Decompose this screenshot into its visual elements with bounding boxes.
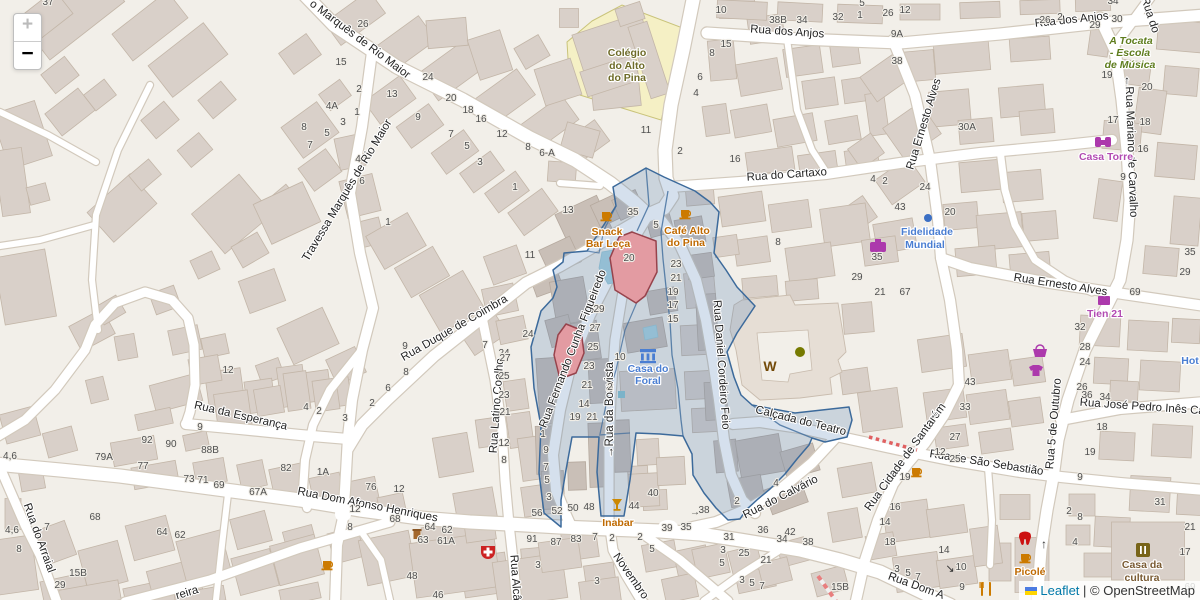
svg-text:38: 38 xyxy=(891,56,903,67)
svg-text:50: 50 xyxy=(567,503,579,514)
svg-text:37: 37 xyxy=(42,0,54,8)
svg-text:9: 9 xyxy=(1077,472,1083,483)
svg-text:29: 29 xyxy=(593,304,605,315)
svg-text:1: 1 xyxy=(385,217,391,228)
svg-text:5: 5 xyxy=(749,578,755,589)
svg-text:2: 2 xyxy=(316,406,322,417)
svg-text:68: 68 xyxy=(389,514,401,525)
svg-text:Foral: Foral xyxy=(635,375,661,387)
svg-text:1: 1 xyxy=(540,429,546,440)
svg-text:Café Alto: Café Alto xyxy=(664,225,710,237)
svg-text:1: 1 xyxy=(512,182,518,193)
svg-text:5: 5 xyxy=(324,128,330,139)
svg-text:83: 83 xyxy=(570,534,582,545)
svg-text:26: 26 xyxy=(1039,15,1051,26)
svg-text:2: 2 xyxy=(609,533,615,544)
svg-text:12: 12 xyxy=(934,447,946,458)
svg-text:35: 35 xyxy=(1184,247,1196,258)
svg-text:15: 15 xyxy=(720,39,732,50)
svg-text:21: 21 xyxy=(874,287,886,298)
svg-text:43: 43 xyxy=(964,377,976,388)
svg-text:14: 14 xyxy=(938,545,950,556)
svg-text:21: 21 xyxy=(760,555,772,566)
svg-text:Hot: Hot xyxy=(1181,355,1199,367)
svg-text:35: 35 xyxy=(627,207,639,218)
svg-text:61A: 61A xyxy=(437,536,455,547)
svg-text:10: 10 xyxy=(614,352,626,363)
svg-text:26: 26 xyxy=(1076,382,1088,393)
svg-text:21: 21 xyxy=(581,380,593,391)
svg-text:20: 20 xyxy=(623,253,635,264)
svg-text:24: 24 xyxy=(522,329,534,340)
svg-text:38: 38 xyxy=(698,505,710,516)
svg-text:29: 29 xyxy=(1089,20,1101,31)
svg-text:3: 3 xyxy=(739,575,745,586)
svg-text:76: 76 xyxy=(365,482,377,493)
svg-text:3: 3 xyxy=(594,576,600,587)
svg-text:17: 17 xyxy=(1107,115,1119,126)
svg-text:27: 27 xyxy=(949,432,961,443)
svg-text:1: 1 xyxy=(857,10,863,21)
svg-text:↘: ↘ xyxy=(945,563,954,575)
svg-text:Casa Torre: Casa Torre xyxy=(1079,151,1133,163)
svg-text:7: 7 xyxy=(915,572,921,583)
svg-text:7: 7 xyxy=(482,340,488,351)
svg-text:- Escola: - Escola xyxy=(1110,47,1150,59)
svg-text:8: 8 xyxy=(301,122,307,133)
svg-text:7: 7 xyxy=(44,522,50,533)
svg-text:68: 68 xyxy=(89,512,101,523)
svg-text:2: 2 xyxy=(677,146,683,157)
svg-text:8: 8 xyxy=(709,48,715,59)
svg-text:13: 13 xyxy=(562,205,574,216)
svg-text:36: 36 xyxy=(757,525,769,536)
svg-text:9: 9 xyxy=(197,422,203,433)
svg-text:4: 4 xyxy=(303,402,309,413)
svg-text:2: 2 xyxy=(607,382,613,393)
svg-text:9: 9 xyxy=(959,582,965,593)
svg-text:2: 2 xyxy=(356,84,362,95)
svg-text:18: 18 xyxy=(462,105,474,116)
svg-text:2: 2 xyxy=(637,532,643,543)
svg-text:16: 16 xyxy=(475,114,487,125)
svg-text:30A: 30A xyxy=(958,122,976,133)
svg-text:3: 3 xyxy=(340,117,346,128)
svg-text:16: 16 xyxy=(889,502,901,513)
svg-text:4A: 4A xyxy=(326,101,339,112)
svg-text:Tien 21: Tien 21 xyxy=(1087,308,1123,320)
svg-text:3: 3 xyxy=(535,560,541,571)
svg-text:16: 16 xyxy=(1137,144,1149,155)
svg-text:4: 4 xyxy=(1072,537,1078,548)
svg-text:do Alto: do Alto xyxy=(609,60,645,72)
svg-text:20: 20 xyxy=(445,93,457,104)
svg-text:10: 10 xyxy=(955,562,967,573)
svg-text:23: 23 xyxy=(583,361,595,372)
svg-text:19: 19 xyxy=(1084,447,1096,458)
svg-text:2: 2 xyxy=(369,398,375,409)
svg-text:15: 15 xyxy=(667,314,679,325)
svg-text:24: 24 xyxy=(422,72,434,83)
svg-text:7: 7 xyxy=(307,140,313,151)
svg-text:46: 46 xyxy=(432,590,444,600)
svg-text:do Pina: do Pina xyxy=(608,72,646,84)
svg-text:2: 2 xyxy=(882,176,888,187)
svg-text:1A: 1A xyxy=(317,467,330,478)
svg-text:12: 12 xyxy=(899,5,911,16)
svg-text:17: 17 xyxy=(667,300,679,311)
svg-text:33: 33 xyxy=(959,402,971,413)
svg-text:20: 20 xyxy=(944,207,956,218)
svg-text:↑: ↑ xyxy=(1041,537,1047,551)
svg-text:25: 25 xyxy=(738,548,750,559)
svg-text:4: 4 xyxy=(693,88,699,99)
svg-text:↑: ↑ xyxy=(1124,75,1130,87)
svg-text:21: 21 xyxy=(586,412,598,423)
svg-text:20: 20 xyxy=(1141,82,1153,93)
svg-text:2: 2 xyxy=(1057,12,1063,23)
svg-text:56: 56 xyxy=(531,508,543,519)
svg-text:9: 9 xyxy=(543,445,549,456)
svg-text:38: 38 xyxy=(802,537,814,548)
svg-text:12: 12 xyxy=(349,504,361,515)
svg-text:21: 21 xyxy=(499,407,511,418)
svg-text:Colégio: Colégio xyxy=(608,47,647,59)
svg-text:52: 52 xyxy=(551,506,563,517)
svg-text:44: 44 xyxy=(628,501,640,512)
svg-text:18: 18 xyxy=(1096,422,1108,433)
svg-text:8: 8 xyxy=(403,367,409,378)
svg-text:6: 6 xyxy=(697,72,703,83)
svg-text:87: 87 xyxy=(550,537,562,548)
svg-text:38B: 38B xyxy=(769,15,787,26)
svg-text:42: 42 xyxy=(784,527,796,538)
svg-text:5: 5 xyxy=(653,220,659,231)
svg-text:5: 5 xyxy=(859,0,865,9)
svg-text:4,6: 4,6 xyxy=(5,525,19,536)
svg-text:18: 18 xyxy=(1139,117,1151,128)
svg-text:5: 5 xyxy=(905,568,911,579)
svg-text:48: 48 xyxy=(406,571,418,582)
svg-text:Snack: Snack xyxy=(592,226,623,238)
svg-text:34: 34 xyxy=(796,15,808,26)
svg-text:40: 40 xyxy=(647,488,659,499)
svg-text:12: 12 xyxy=(498,438,510,449)
svg-text:79A: 79A xyxy=(95,452,113,463)
svg-text:21: 21 xyxy=(1184,522,1196,533)
svg-text:16: 16 xyxy=(729,154,741,165)
svg-text:29: 29 xyxy=(54,580,66,591)
svg-text:73: 73 xyxy=(183,474,195,485)
svg-text:15B: 15B xyxy=(831,582,849,593)
svg-text:2: 2 xyxy=(734,496,740,507)
svg-text:8: 8 xyxy=(1077,512,1083,523)
svg-text:34: 34 xyxy=(1099,392,1111,403)
svg-text:W: W xyxy=(763,358,777,374)
svg-text:63: 63 xyxy=(417,535,429,546)
svg-text:7: 7 xyxy=(759,581,765,592)
svg-text:11: 11 xyxy=(641,125,652,136)
svg-text:91: 91 xyxy=(526,534,538,545)
svg-text:28: 28 xyxy=(1079,342,1091,353)
svg-text:32: 32 xyxy=(832,12,844,23)
svg-text:Casa da: Casa da xyxy=(1122,559,1162,571)
svg-text:7: 7 xyxy=(448,129,454,140)
svg-text:82: 82 xyxy=(280,463,292,474)
svg-text:11: 11 xyxy=(525,250,536,261)
svg-text:3: 3 xyxy=(477,157,483,168)
svg-text:17: 17 xyxy=(1179,547,1191,558)
svg-text:Mundial: Mundial xyxy=(905,239,945,251)
svg-text:8: 8 xyxy=(16,544,22,555)
svg-text:5: 5 xyxy=(649,544,655,555)
svg-text:3: 3 xyxy=(342,413,348,424)
svg-text:8: 8 xyxy=(775,237,781,248)
svg-text:25: 25 xyxy=(949,454,961,465)
svg-text:10: 10 xyxy=(715,5,727,16)
svg-text:24: 24 xyxy=(1079,357,1091,368)
svg-text:2: 2 xyxy=(1066,506,1072,517)
svg-text:43: 43 xyxy=(894,202,906,213)
svg-text:12: 12 xyxy=(222,365,234,376)
svg-text:8: 8 xyxy=(347,522,353,533)
svg-text:4: 4 xyxy=(870,174,876,185)
svg-text:67A: 67A xyxy=(249,487,267,498)
svg-text:24: 24 xyxy=(919,182,931,193)
svg-text:7: 7 xyxy=(592,532,598,543)
svg-text:15B: 15B xyxy=(69,568,87,579)
svg-text:Casa do: Casa do xyxy=(628,363,669,375)
svg-text:6: 6 xyxy=(385,383,391,394)
svg-text:31: 31 xyxy=(723,532,735,543)
svg-text:Inabar: Inabar xyxy=(602,517,634,529)
svg-text:4: 4 xyxy=(773,478,779,489)
svg-text:6: 6 xyxy=(359,176,365,187)
svg-text:4: 4 xyxy=(355,154,361,165)
svg-text:32: 32 xyxy=(1074,322,1086,333)
svg-text:27: 27 xyxy=(499,353,511,364)
svg-text:90: 90 xyxy=(165,439,177,450)
svg-text:29: 29 xyxy=(1179,267,1191,278)
svg-text:Picolé: Picolé xyxy=(1015,566,1046,578)
svg-text:4,6: 4,6 xyxy=(3,451,17,462)
svg-text:18: 18 xyxy=(884,537,896,548)
svg-text:6-A: 6-A xyxy=(539,148,555,159)
svg-text:13: 13 xyxy=(386,89,398,100)
svg-text:27: 27 xyxy=(589,323,601,334)
svg-text:3: 3 xyxy=(546,492,552,503)
svg-text:19: 19 xyxy=(667,287,679,298)
svg-text:92: 92 xyxy=(141,435,153,446)
svg-text:77: 77 xyxy=(137,461,149,472)
svg-text:14: 14 xyxy=(578,399,590,410)
svg-text:23: 23 xyxy=(498,390,510,401)
svg-text:A Tocata: A Tocata xyxy=(1108,35,1153,47)
svg-text:26: 26 xyxy=(882,8,894,19)
svg-text:15: 15 xyxy=(335,57,347,68)
svg-text:88B: 88B xyxy=(201,445,219,456)
svg-text:Fidelidade: Fidelidade xyxy=(901,226,953,238)
svg-text:39: 39 xyxy=(661,523,673,534)
svg-text:62: 62 xyxy=(174,530,186,541)
svg-text:9: 9 xyxy=(1120,172,1126,183)
svg-text:62: 62 xyxy=(441,525,453,536)
svg-text:5: 5 xyxy=(544,475,550,486)
svg-text:64: 64 xyxy=(156,527,168,538)
svg-text:1: 1 xyxy=(354,107,360,118)
svg-text:do Pina: do Pina xyxy=(667,237,705,249)
svg-text:31: 31 xyxy=(1154,497,1166,508)
svg-text:69: 69 xyxy=(1129,287,1141,298)
svg-text:Bar Leça: Bar Leça xyxy=(586,238,631,250)
svg-text:69: 69 xyxy=(213,480,225,491)
svg-text:21: 21 xyxy=(670,273,682,284)
svg-text:12: 12 xyxy=(393,484,405,495)
svg-text:67: 67 xyxy=(899,287,911,298)
svg-text:8: 8 xyxy=(525,142,531,153)
svg-text:25: 25 xyxy=(498,371,510,382)
svg-text:64: 64 xyxy=(424,522,436,533)
svg-text:29: 29 xyxy=(851,272,863,283)
svg-text:12: 12 xyxy=(496,129,508,140)
svg-text:8: 8 xyxy=(501,455,507,466)
svg-text:34: 34 xyxy=(1107,0,1119,7)
svg-text:23: 23 xyxy=(670,259,682,270)
svg-text:35: 35 xyxy=(871,252,883,263)
svg-text:25: 25 xyxy=(587,342,599,353)
svg-text:3: 3 xyxy=(720,545,726,556)
svg-text:26: 26 xyxy=(357,19,369,30)
svg-text:19: 19 xyxy=(899,472,911,483)
svg-text:5: 5 xyxy=(719,558,725,569)
svg-text:3: 3 xyxy=(894,564,900,575)
svg-text:9: 9 xyxy=(415,112,421,123)
svg-text:71: 71 xyxy=(197,475,209,486)
svg-text:→Rua da Boavista: →Rua da Boavista xyxy=(604,361,616,457)
svg-text:9A: 9A xyxy=(891,29,904,40)
svg-text:30: 30 xyxy=(1111,14,1123,25)
svg-text:7: 7 xyxy=(543,462,549,473)
svg-text:19: 19 xyxy=(569,412,581,423)
svg-text:35: 35 xyxy=(680,522,692,533)
svg-text:19: 19 xyxy=(1101,70,1113,81)
svg-text:9: 9 xyxy=(402,341,408,352)
svg-text:48: 48 xyxy=(583,502,595,513)
svg-text:14: 14 xyxy=(879,517,891,528)
svg-text:5: 5 xyxy=(464,141,470,152)
